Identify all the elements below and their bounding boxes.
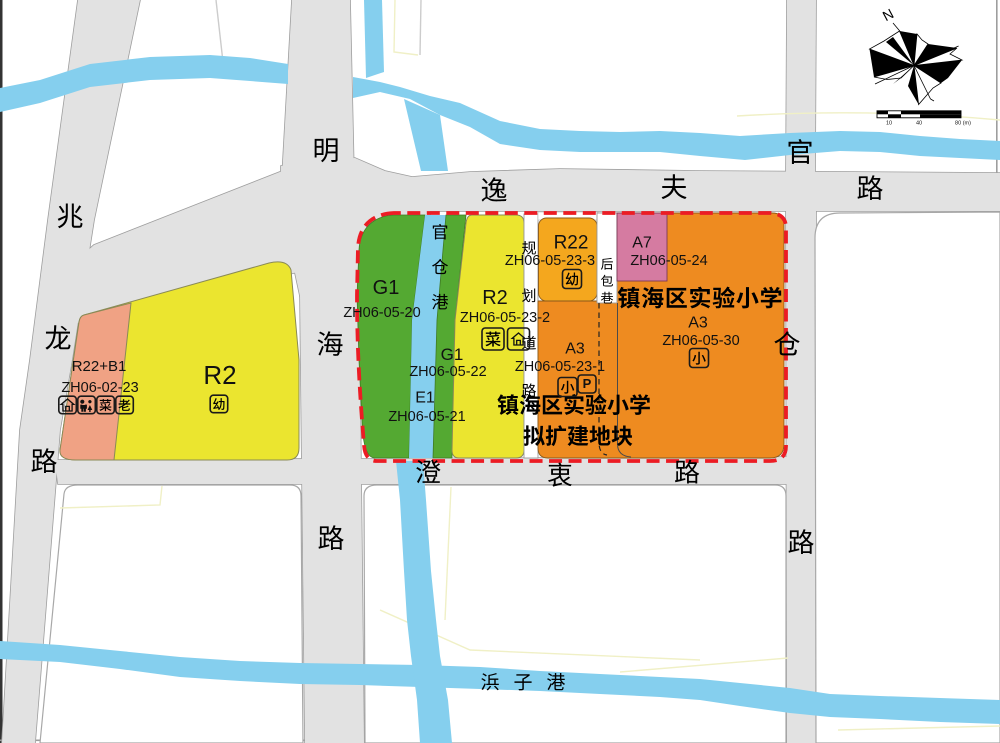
svg-text:10: 10: [886, 120, 892, 126]
svg-text:ZH06-02-23: ZH06-02-23: [61, 380, 138, 396]
svg-text:80 (m): 80 (m): [955, 120, 971, 126]
svg-text:A7: A7: [632, 235, 652, 252]
svg-text:R2: R2: [482, 287, 508, 309]
svg-text:ZH06-05-23-3: ZH06-05-23-3: [505, 253, 595, 269]
svg-text:ZH06-05-21: ZH06-05-21: [388, 409, 465, 425]
svg-text:40: 40: [916, 120, 922, 126]
svg-text:A3: A3: [688, 315, 708, 332]
svg-text:E1: E1: [415, 390, 435, 407]
svg-text:ZH06-05-20: ZH06-05-20: [343, 305, 420, 321]
svg-text:A3: A3: [565, 341, 585, 358]
svg-text:R22: R22: [554, 233, 589, 254]
svg-text:ZH06-05-22: ZH06-05-22: [409, 364, 486, 380]
svg-text:ZH06-05-23-1: ZH06-05-23-1: [515, 359, 605, 375]
svg-text:ZH06-05-30: ZH06-05-30: [662, 333, 739, 349]
svg-text:ZH06-05-24: ZH06-05-24: [630, 253, 707, 269]
svg-text:G1: G1: [441, 345, 464, 364]
svg-text:P: P: [583, 376, 592, 391]
svg-text:R22+B1: R22+B1: [72, 358, 127, 375]
svg-text:ZH06-05-23-2: ZH06-05-23-2: [460, 310, 550, 326]
svg-text:G1: G1: [373, 277, 400, 299]
svg-text:R2: R2: [203, 360, 236, 390]
